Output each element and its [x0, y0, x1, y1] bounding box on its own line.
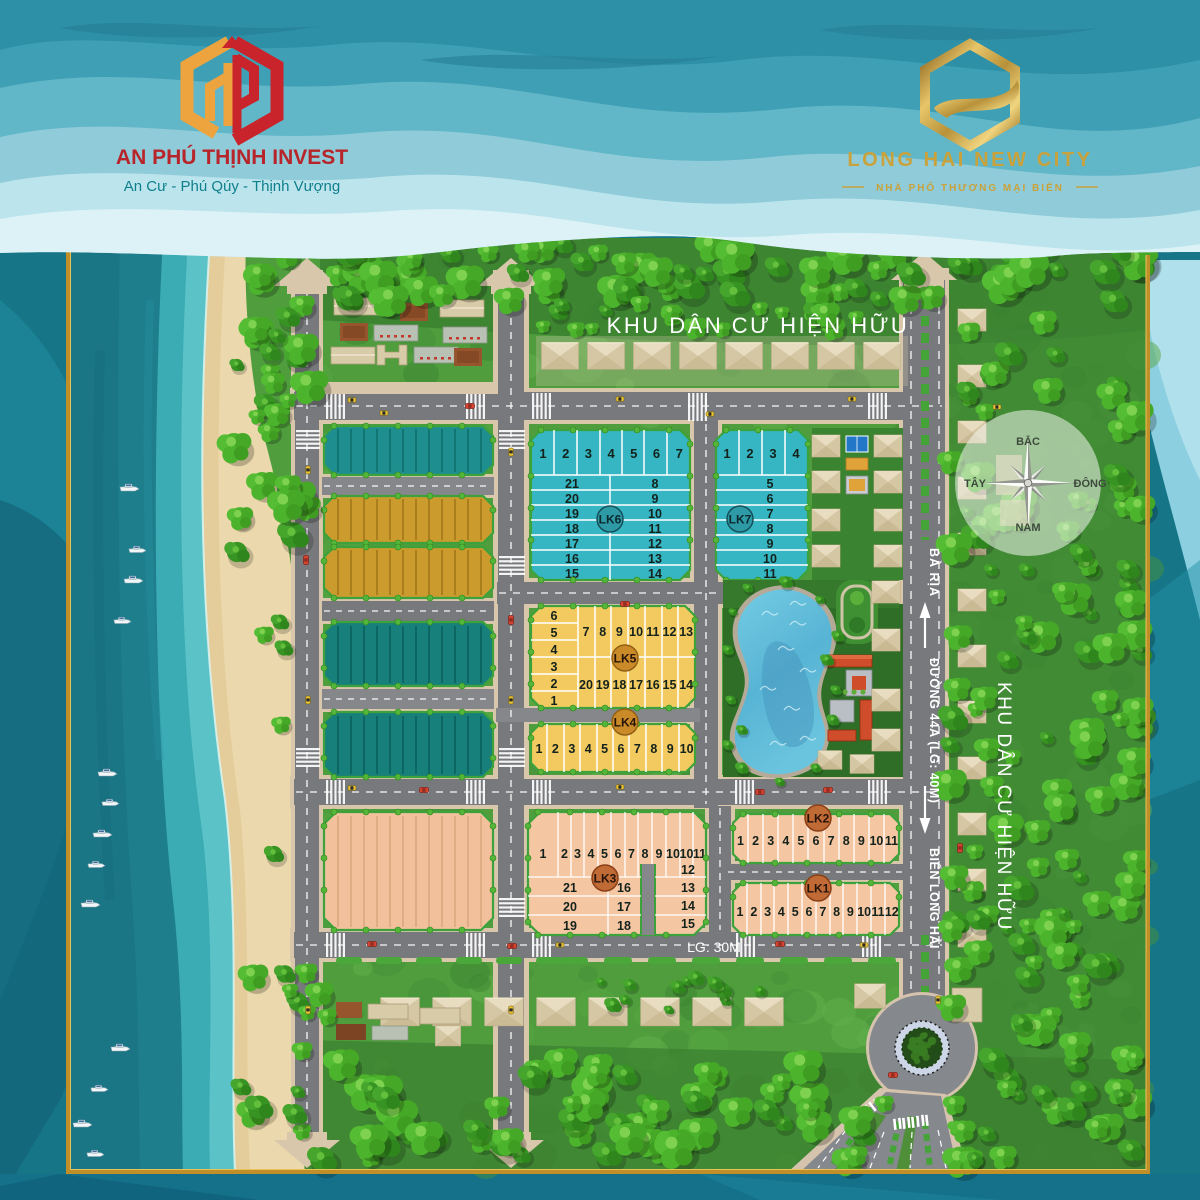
- svg-text:1: 1: [737, 834, 744, 848]
- svg-text:10: 10: [680, 847, 694, 861]
- svg-text:18: 18: [565, 522, 579, 536]
- svg-text:14: 14: [679, 678, 693, 692]
- svg-text:7: 7: [628, 847, 635, 861]
- svg-text:17: 17: [617, 900, 631, 914]
- svg-text:12: 12: [648, 537, 662, 551]
- svg-text:6: 6: [618, 742, 625, 756]
- svg-text:4: 4: [782, 834, 789, 848]
- svg-text:ĐƯỜNG 44A (LG: 40M): ĐƯỜNG 44A (LG: 40M): [927, 658, 942, 803]
- svg-text:16: 16: [646, 678, 660, 692]
- svg-text:2: 2: [752, 834, 759, 848]
- svg-text:5: 5: [767, 477, 774, 491]
- svg-text:6: 6: [653, 446, 660, 461]
- svg-text:4: 4: [588, 847, 595, 861]
- svg-text:5: 5: [797, 834, 804, 848]
- svg-text:9: 9: [652, 492, 659, 506]
- svg-text:13: 13: [679, 625, 693, 639]
- svg-text:An Cư - Phú Qúy - Thịnh Vượng: An Cư - Phú Qúy - Thịnh Vượng: [124, 178, 340, 195]
- svg-text:1: 1: [723, 446, 730, 461]
- svg-text:BIỂN LONG HẢI: BIỂN LONG HẢI: [927, 848, 942, 949]
- svg-text:LK1: LK1: [807, 882, 830, 896]
- svg-text:10: 10: [629, 625, 643, 639]
- svg-text:17: 17: [565, 537, 579, 551]
- svg-text:20: 20: [565, 492, 579, 506]
- svg-text:10: 10: [680, 742, 694, 756]
- svg-text:1: 1: [551, 694, 558, 708]
- svg-text:9: 9: [616, 625, 623, 639]
- svg-text:7: 7: [676, 446, 683, 461]
- svg-text:6: 6: [813, 834, 820, 848]
- svg-text:8: 8: [843, 834, 850, 848]
- svg-text:9: 9: [858, 834, 865, 848]
- svg-text:4: 4: [792, 446, 800, 461]
- svg-text:15: 15: [681, 917, 695, 931]
- svg-text:1: 1: [536, 742, 543, 756]
- svg-text:11: 11: [646, 625, 659, 639]
- svg-text:NAM: NAM: [1015, 522, 1040, 534]
- svg-text:4: 4: [778, 905, 785, 919]
- svg-text:17: 17: [629, 678, 643, 692]
- svg-text:16: 16: [565, 552, 579, 566]
- svg-text:8: 8: [767, 522, 774, 536]
- svg-text:19: 19: [596, 678, 610, 692]
- svg-text:7: 7: [828, 834, 835, 848]
- svg-text:TÂY: TÂY: [964, 477, 987, 490]
- svg-text:11: 11: [648, 522, 661, 536]
- svg-text:18: 18: [612, 678, 626, 692]
- svg-text:LK6: LK6: [599, 513, 622, 527]
- svg-text:6: 6: [615, 847, 622, 861]
- svg-text:4: 4: [607, 446, 615, 461]
- svg-text:11: 11: [885, 834, 898, 848]
- svg-text:5: 5: [630, 446, 637, 461]
- svg-text:10: 10: [857, 905, 871, 919]
- svg-text:3: 3: [551, 660, 558, 674]
- svg-text:18: 18: [617, 919, 631, 933]
- svg-text:ĐÔNG: ĐÔNG: [1074, 477, 1107, 490]
- svg-text:14: 14: [681, 899, 695, 913]
- svg-text:4: 4: [551, 643, 558, 657]
- svg-text:2: 2: [746, 446, 753, 461]
- svg-text:3: 3: [585, 446, 592, 461]
- svg-text:7: 7: [819, 905, 826, 919]
- svg-text:2: 2: [562, 446, 569, 461]
- svg-text:11: 11: [763, 567, 776, 581]
- svg-text:5: 5: [601, 847, 608, 861]
- svg-text:3: 3: [767, 834, 774, 848]
- svg-text:3: 3: [568, 742, 575, 756]
- svg-text:LK5: LK5: [614, 652, 637, 666]
- svg-text:7: 7: [634, 742, 641, 756]
- svg-text:12: 12: [681, 863, 695, 877]
- svg-text:1: 1: [540, 847, 547, 861]
- svg-text:20: 20: [563, 900, 577, 914]
- svg-text:6: 6: [551, 609, 558, 623]
- svg-text:6: 6: [806, 905, 813, 919]
- svg-text:10: 10: [648, 507, 662, 521]
- svg-text:BẮC: BẮC: [1016, 435, 1040, 448]
- svg-text:5: 5: [551, 626, 558, 640]
- svg-text:2: 2: [551, 677, 558, 691]
- svg-text:10: 10: [763, 552, 777, 566]
- svg-text:2: 2: [561, 847, 568, 861]
- svg-text:8: 8: [652, 477, 659, 491]
- svg-text:9: 9: [656, 847, 663, 861]
- svg-text:LK3: LK3: [594, 872, 617, 886]
- svg-text:5: 5: [601, 742, 608, 756]
- svg-text:LG: 30M: LG: 30M: [687, 939, 741, 955]
- svg-text:2: 2: [750, 905, 757, 919]
- svg-text:4: 4: [585, 742, 592, 756]
- svg-text:9: 9: [847, 905, 854, 919]
- svg-text:20: 20: [579, 678, 593, 692]
- svg-text:6: 6: [767, 492, 774, 506]
- svg-text:2: 2: [552, 742, 559, 756]
- svg-text:19: 19: [565, 507, 579, 521]
- svg-text:9: 9: [667, 742, 674, 756]
- svg-text:3: 3: [764, 905, 771, 919]
- svg-text:1: 1: [539, 446, 546, 461]
- svg-text:10: 10: [869, 834, 883, 848]
- svg-text:KHU DÂN CƯ HIỆN HỮU: KHU DÂN CƯ HIỆN HỮU: [993, 682, 1015, 931]
- svg-text:21: 21: [563, 881, 577, 895]
- svg-text:8: 8: [599, 625, 606, 639]
- svg-text:LK4: LK4: [614, 716, 637, 730]
- svg-text:8: 8: [833, 905, 840, 919]
- svg-text:12: 12: [663, 625, 677, 639]
- svg-text:13: 13: [648, 552, 662, 566]
- svg-text:BÀ RỊA: BÀ RỊA: [927, 548, 942, 597]
- svg-text:KHU DÂN CƯ HIỆN HỮU: KHU DÂN CƯ HIỆN HỮU: [607, 313, 910, 338]
- svg-text:11: 11: [871, 905, 884, 919]
- svg-text:NHÀ PHỐ THƯƠNG MẠI BIỂN: NHÀ PHỐ THƯƠNG MẠI BIỂN: [876, 180, 1064, 194]
- svg-text:5: 5: [792, 905, 799, 919]
- svg-text:3: 3: [769, 446, 776, 461]
- svg-text:8: 8: [650, 742, 657, 756]
- svg-text:19: 19: [563, 919, 577, 933]
- svg-text:LK2: LK2: [807, 812, 830, 826]
- svg-text:7: 7: [767, 507, 774, 521]
- svg-text:15: 15: [663, 678, 677, 692]
- svg-text:10: 10: [666, 847, 680, 861]
- svg-text:3: 3: [574, 847, 581, 861]
- svg-text:21: 21: [565, 477, 579, 491]
- svg-text:LONG HAI NEW CITY: LONG HAI NEW CITY: [847, 149, 1092, 171]
- svg-text:7: 7: [583, 625, 590, 639]
- svg-text:8: 8: [642, 847, 649, 861]
- svg-text:16: 16: [617, 881, 631, 895]
- svg-text:14: 14: [648, 567, 662, 581]
- svg-text:AN PHÚ THỊNH INVEST: AN PHÚ THỊNH INVEST: [116, 145, 348, 169]
- svg-text:12: 12: [885, 905, 899, 919]
- svg-text:LK7: LK7: [729, 513, 752, 527]
- svg-text:13: 13: [681, 881, 695, 895]
- svg-text:9: 9: [767, 537, 774, 551]
- svg-text:1: 1: [737, 905, 744, 919]
